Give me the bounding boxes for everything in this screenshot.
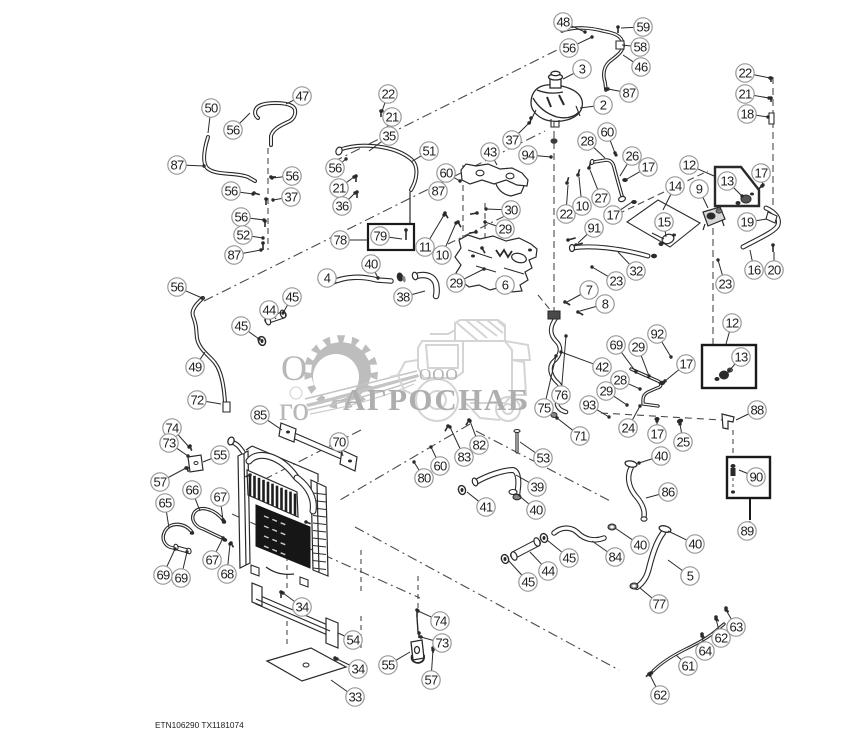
svg-text:92: 92 xyxy=(650,327,664,342)
svg-text:38: 38 xyxy=(396,290,410,305)
svg-text:18: 18 xyxy=(740,107,754,122)
svg-text:27: 27 xyxy=(594,191,608,206)
svg-text:17: 17 xyxy=(679,357,693,372)
svg-text:ETN106290 TX1181074: ETN106290 TX1181074 xyxy=(155,720,244,730)
svg-text:83: 83 xyxy=(457,450,471,465)
svg-text:17: 17 xyxy=(606,208,620,223)
svg-text:86: 86 xyxy=(661,485,675,500)
svg-text:70: 70 xyxy=(332,435,346,450)
svg-text:30: 30 xyxy=(504,203,518,218)
svg-text:58: 58 xyxy=(633,40,647,55)
svg-text:60: 60 xyxy=(433,459,447,474)
svg-text:44: 44 xyxy=(541,564,555,579)
svg-text:28: 28 xyxy=(580,134,594,149)
svg-text:7: 7 xyxy=(586,283,593,298)
svg-text:89: 89 xyxy=(740,524,754,539)
svg-text:93: 93 xyxy=(582,398,596,413)
svg-text:40: 40 xyxy=(529,503,543,518)
svg-text:63: 63 xyxy=(729,620,743,635)
svg-text:51: 51 xyxy=(422,144,436,159)
svg-text:40: 40 xyxy=(633,538,647,553)
svg-text:74: 74 xyxy=(433,614,447,629)
svg-text:О: О xyxy=(281,348,307,388)
svg-text:17: 17 xyxy=(754,166,768,181)
svg-text:9: 9 xyxy=(696,182,703,197)
svg-text:45: 45 xyxy=(285,290,299,305)
svg-text:24: 24 xyxy=(621,421,635,436)
svg-text:13: 13 xyxy=(734,350,748,365)
svg-text:33: 33 xyxy=(348,690,362,705)
svg-text:65: 65 xyxy=(158,496,172,511)
svg-text:60: 60 xyxy=(439,166,453,181)
svg-text:56: 56 xyxy=(226,123,240,138)
svg-text:го: го xyxy=(279,391,309,428)
svg-text:66: 66 xyxy=(185,483,199,498)
svg-text:17: 17 xyxy=(641,160,655,175)
svg-text:39: 39 xyxy=(530,480,544,495)
svg-text:53: 53 xyxy=(536,451,550,466)
svg-text:34: 34 xyxy=(351,662,365,677)
svg-text:91: 91 xyxy=(587,221,601,236)
svg-text:8: 8 xyxy=(602,297,609,312)
svg-text:13: 13 xyxy=(720,174,734,189)
svg-text:59: 59 xyxy=(636,20,650,35)
svg-text:80: 80 xyxy=(417,471,431,486)
svg-text:45: 45 xyxy=(234,319,248,334)
svg-text:84: 84 xyxy=(608,550,622,565)
svg-text:73: 73 xyxy=(162,436,176,451)
svg-text:90: 90 xyxy=(749,470,763,485)
svg-text:71: 71 xyxy=(573,429,587,444)
svg-text:69: 69 xyxy=(156,568,170,583)
svg-text:62: 62 xyxy=(714,631,728,646)
svg-text:40: 40 xyxy=(688,537,702,552)
svg-text:44: 44 xyxy=(262,303,276,318)
svg-text:76: 76 xyxy=(554,388,568,403)
svg-text:41: 41 xyxy=(479,500,493,515)
svg-text:69: 69 xyxy=(609,338,623,353)
svg-text:57: 57 xyxy=(424,673,438,688)
svg-text:21: 21 xyxy=(385,110,399,125)
svg-text:87: 87 xyxy=(170,158,184,173)
svg-text:56: 56 xyxy=(328,161,342,176)
svg-text:3: 3 xyxy=(579,62,586,77)
svg-text:55: 55 xyxy=(213,448,227,463)
svg-text:48: 48 xyxy=(556,15,570,30)
svg-text:75: 75 xyxy=(537,401,551,416)
svg-text:54: 54 xyxy=(346,633,360,648)
svg-text:35: 35 xyxy=(382,129,396,144)
svg-text:22: 22 xyxy=(381,87,395,102)
svg-text:42: 42 xyxy=(595,360,609,375)
svg-text:56: 56 xyxy=(562,41,576,56)
svg-text:40: 40 xyxy=(654,449,668,464)
svg-text:87: 87 xyxy=(227,248,241,263)
svg-text:22: 22 xyxy=(738,66,752,81)
svg-text:29: 29 xyxy=(599,384,613,399)
svg-text:94: 94 xyxy=(521,148,535,163)
svg-text:6: 6 xyxy=(502,278,509,293)
svg-text:56: 56 xyxy=(285,169,299,184)
svg-text:52: 52 xyxy=(236,228,250,243)
svg-text:10: 10 xyxy=(435,248,449,263)
svg-text:88: 88 xyxy=(750,403,764,418)
svg-text:46: 46 xyxy=(634,60,648,75)
svg-text:56: 56 xyxy=(224,184,238,199)
svg-text:55: 55 xyxy=(381,658,395,673)
svg-text:26: 26 xyxy=(625,149,639,164)
svg-text:20: 20 xyxy=(767,263,781,278)
svg-text:17: 17 xyxy=(650,427,664,442)
svg-text:23: 23 xyxy=(609,274,623,289)
svg-text:87: 87 xyxy=(431,184,445,199)
svg-text:16: 16 xyxy=(747,263,761,278)
svg-text:47: 47 xyxy=(295,89,309,104)
svg-text:29: 29 xyxy=(449,276,463,291)
svg-text:78: 78 xyxy=(333,233,347,248)
svg-text:32: 32 xyxy=(629,264,643,279)
svg-text:82: 82 xyxy=(472,438,486,453)
svg-text:5: 5 xyxy=(687,569,694,584)
svg-text:73: 73 xyxy=(435,636,449,651)
svg-text:21: 21 xyxy=(738,87,752,102)
svg-text:14: 14 xyxy=(668,179,682,194)
svg-text:72: 72 xyxy=(190,393,204,408)
svg-text:87: 87 xyxy=(622,86,636,101)
svg-text:50: 50 xyxy=(204,101,218,116)
svg-text:49: 49 xyxy=(188,360,202,375)
svg-text:56: 56 xyxy=(170,280,184,295)
svg-text:10: 10 xyxy=(575,199,589,214)
svg-text:45: 45 xyxy=(562,551,576,566)
svg-text:21: 21 xyxy=(332,181,346,196)
svg-text:61: 61 xyxy=(681,659,695,674)
svg-text:28: 28 xyxy=(613,373,627,388)
svg-text:15: 15 xyxy=(657,215,671,230)
svg-text:36: 36 xyxy=(335,199,349,214)
svg-text:85: 85 xyxy=(253,408,267,423)
svg-text:62: 62 xyxy=(653,688,667,703)
svg-text:37: 37 xyxy=(505,133,519,148)
svg-text:77: 77 xyxy=(652,597,666,612)
svg-text:АГРОСНАБ: АГРОСНАБ xyxy=(343,382,530,417)
svg-text:37: 37 xyxy=(284,190,298,205)
svg-text:40: 40 xyxy=(364,257,378,272)
svg-text:64: 64 xyxy=(698,644,712,659)
svg-text:2: 2 xyxy=(600,98,607,113)
svg-text:4: 4 xyxy=(324,271,331,286)
svg-text:60: 60 xyxy=(600,125,614,140)
svg-text:29: 29 xyxy=(498,222,512,237)
svg-text:45: 45 xyxy=(521,575,535,590)
svg-text:68: 68 xyxy=(220,567,234,582)
svg-text:23: 23 xyxy=(718,277,732,292)
svg-text:34: 34 xyxy=(295,600,309,615)
svg-text:67: 67 xyxy=(213,490,227,505)
svg-text:19: 19 xyxy=(740,215,754,230)
svg-text:25: 25 xyxy=(676,435,690,450)
svg-text:11: 11 xyxy=(419,240,432,255)
svg-text:67: 67 xyxy=(205,553,219,568)
svg-text:12: 12 xyxy=(725,316,739,331)
svg-text:79: 79 xyxy=(373,229,387,244)
svg-text:12: 12 xyxy=(682,158,696,173)
svg-text:56: 56 xyxy=(234,210,248,225)
svg-text:69: 69 xyxy=(174,571,188,586)
svg-text:57: 57 xyxy=(153,475,167,490)
svg-text:22: 22 xyxy=(559,207,573,222)
svg-text:29: 29 xyxy=(631,340,645,355)
svg-text:43: 43 xyxy=(483,145,497,160)
